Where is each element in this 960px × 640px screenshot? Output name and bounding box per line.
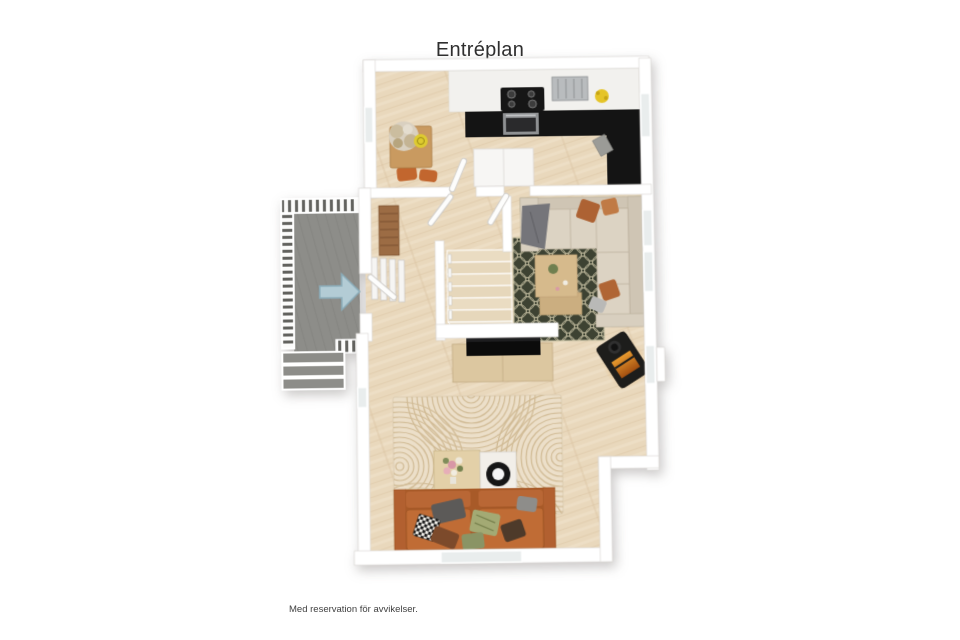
oven [503, 113, 539, 135]
sofa-orange [394, 487, 556, 554]
window-bottom [441, 551, 522, 563]
page: Entréplan [0, 0, 960, 640]
floorplan-canvas [0, 0, 960, 640]
coffee-table-living [535, 255, 582, 315]
staircase [447, 250, 512, 335]
pillow-sage [461, 532, 485, 551]
cooktop [500, 87, 544, 111]
floorplan-svg [0, 0, 960, 640]
kitchen-counter-black [465, 109, 640, 137]
tv-half-wall [436, 323, 558, 339]
deck [281, 198, 361, 389]
tv-unit [452, 331, 553, 382]
radiator [379, 206, 400, 256]
kitchen-counter-black-side [607, 135, 642, 187]
living-room [512, 196, 644, 341]
dish-rack [552, 77, 588, 101]
deck-railing-left [281, 213, 294, 349]
disclaimer-text: Med reservation för avvikelser. [289, 604, 418, 615]
deck-railing-top [281, 198, 359, 213]
window-sill-tab [657, 347, 666, 381]
dining-chair-2 [419, 169, 438, 183]
deck-steps [282, 352, 344, 390]
pillow-gray-2 [516, 496, 538, 513]
